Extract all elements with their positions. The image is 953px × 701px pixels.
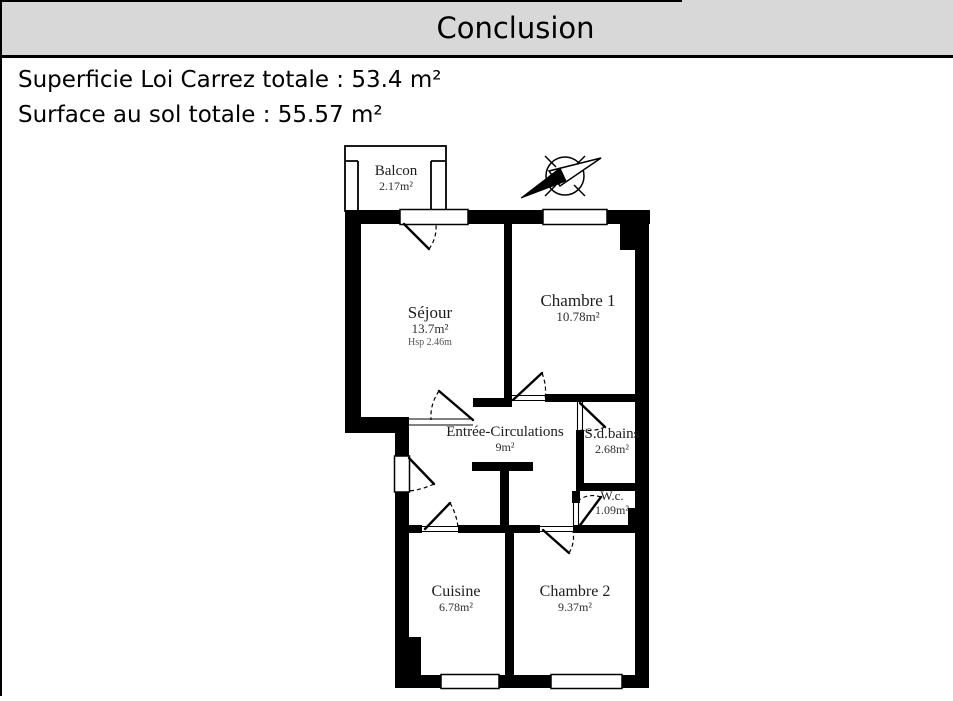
room-label-chambre2: Chambre 2 9.37m² [540, 583, 611, 614]
north-arrow-icon [521, 156, 601, 198]
page-border-top [0, 0, 682, 2]
room-label-cuisine: Cuisine 6.78m² [432, 583, 481, 614]
report-page: Conclusion Superficie Loi Carrez totale … [0, 0, 953, 701]
room-label-balcon: Balcon 2.17m² [375, 163, 418, 193]
room-label-entree: Entrée-Circulations 9m² [446, 424, 563, 454]
page-border-left [0, 0, 2, 696]
room-label-wc: W.c. 1.09m² [595, 489, 629, 517]
room-label-chambre1: Chambre 1 10.78m² [540, 291, 615, 325]
room-label-sejour: Séjour 13.7m² Hsp 2.46m [408, 303, 452, 348]
room-label-sdb: S.d.bains 2.68m² [584, 426, 639, 456]
